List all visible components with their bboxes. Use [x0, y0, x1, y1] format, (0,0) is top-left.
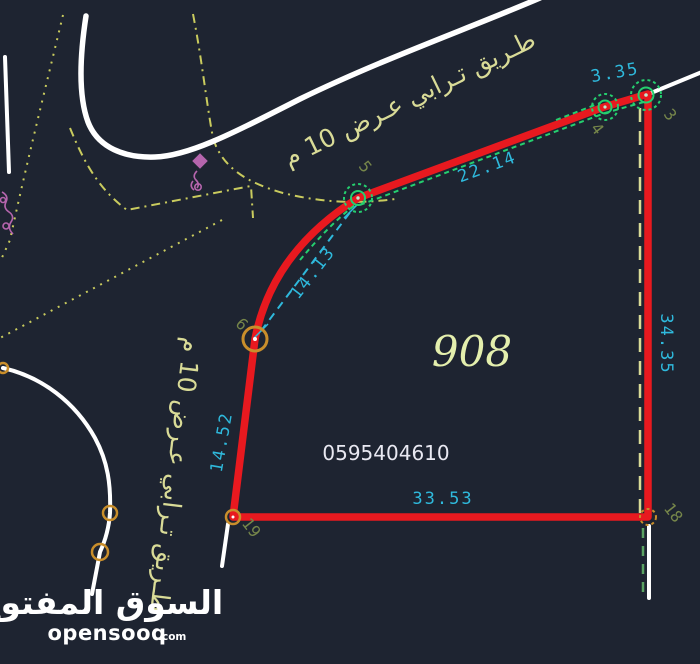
- watermark-tld: .com: [158, 631, 186, 643]
- road-edge-line: [0, 220, 222, 338]
- survey-marker-left: [1, 192, 14, 234]
- dimension-edge-6-19: 14.52: [207, 410, 237, 474]
- parcel-number: 908: [432, 327, 512, 376]
- dimension-edge-19-18: 33.53: [412, 489, 473, 509]
- diamond-marker-icon: [192, 153, 208, 169]
- road-label-left: طـريق تـرابي عـرض 10 م: [144, 336, 207, 614]
- watermark: السوق المفتوح opensooq .com: [0, 583, 223, 645]
- marker-scribble: [1, 198, 6, 203]
- phone-number: 0595404610: [322, 441, 449, 465]
- road-stub-below-19: [222, 524, 228, 566]
- vertex-dot: [232, 516, 235, 519]
- point-label-3: 3: [660, 105, 681, 124]
- road-centerline-topright: [651, 72, 700, 93]
- point-label-6: 6: [232, 314, 252, 334]
- watermark-arabic: السوق المفتوح: [0, 583, 223, 623]
- vertex-dot: [253, 337, 257, 341]
- road-centerlines: [3, 0, 700, 598]
- vertex-dot: [644, 93, 648, 97]
- point-label-5: 5: [355, 157, 376, 176]
- road-centerline-bottomleft: [3, 368, 110, 594]
- survey-marker-junction: [191, 153, 208, 190]
- point-label-4: 4: [587, 119, 608, 138]
- dimension-edge-18-3: 34.35: [656, 313, 676, 374]
- road-centerline-leftedge: [5, 57, 9, 172]
- marker-scribble: [3, 223, 9, 229]
- point-label-18: 18: [660, 499, 687, 526]
- cad-canvas: 3.35 22.14 14.13 34.35 33.53 14.52 3 4 5…: [0, 0, 700, 664]
- vertex-dot: [603, 105, 606, 108]
- vertex-dot: [356, 196, 359, 199]
- watermark-latin: opensooq: [47, 621, 166, 645]
- road-edge-lines: [0, 14, 395, 338]
- cad-parcel-drawing: 3.35 22.14 14.13 34.35 33.53 14.52 3 4 5…: [0, 0, 700, 664]
- road-label-top: طـريق تـرابي عـرض 10 م: [278, 25, 540, 172]
- dimension-edge-3-4: 3.35: [589, 59, 641, 87]
